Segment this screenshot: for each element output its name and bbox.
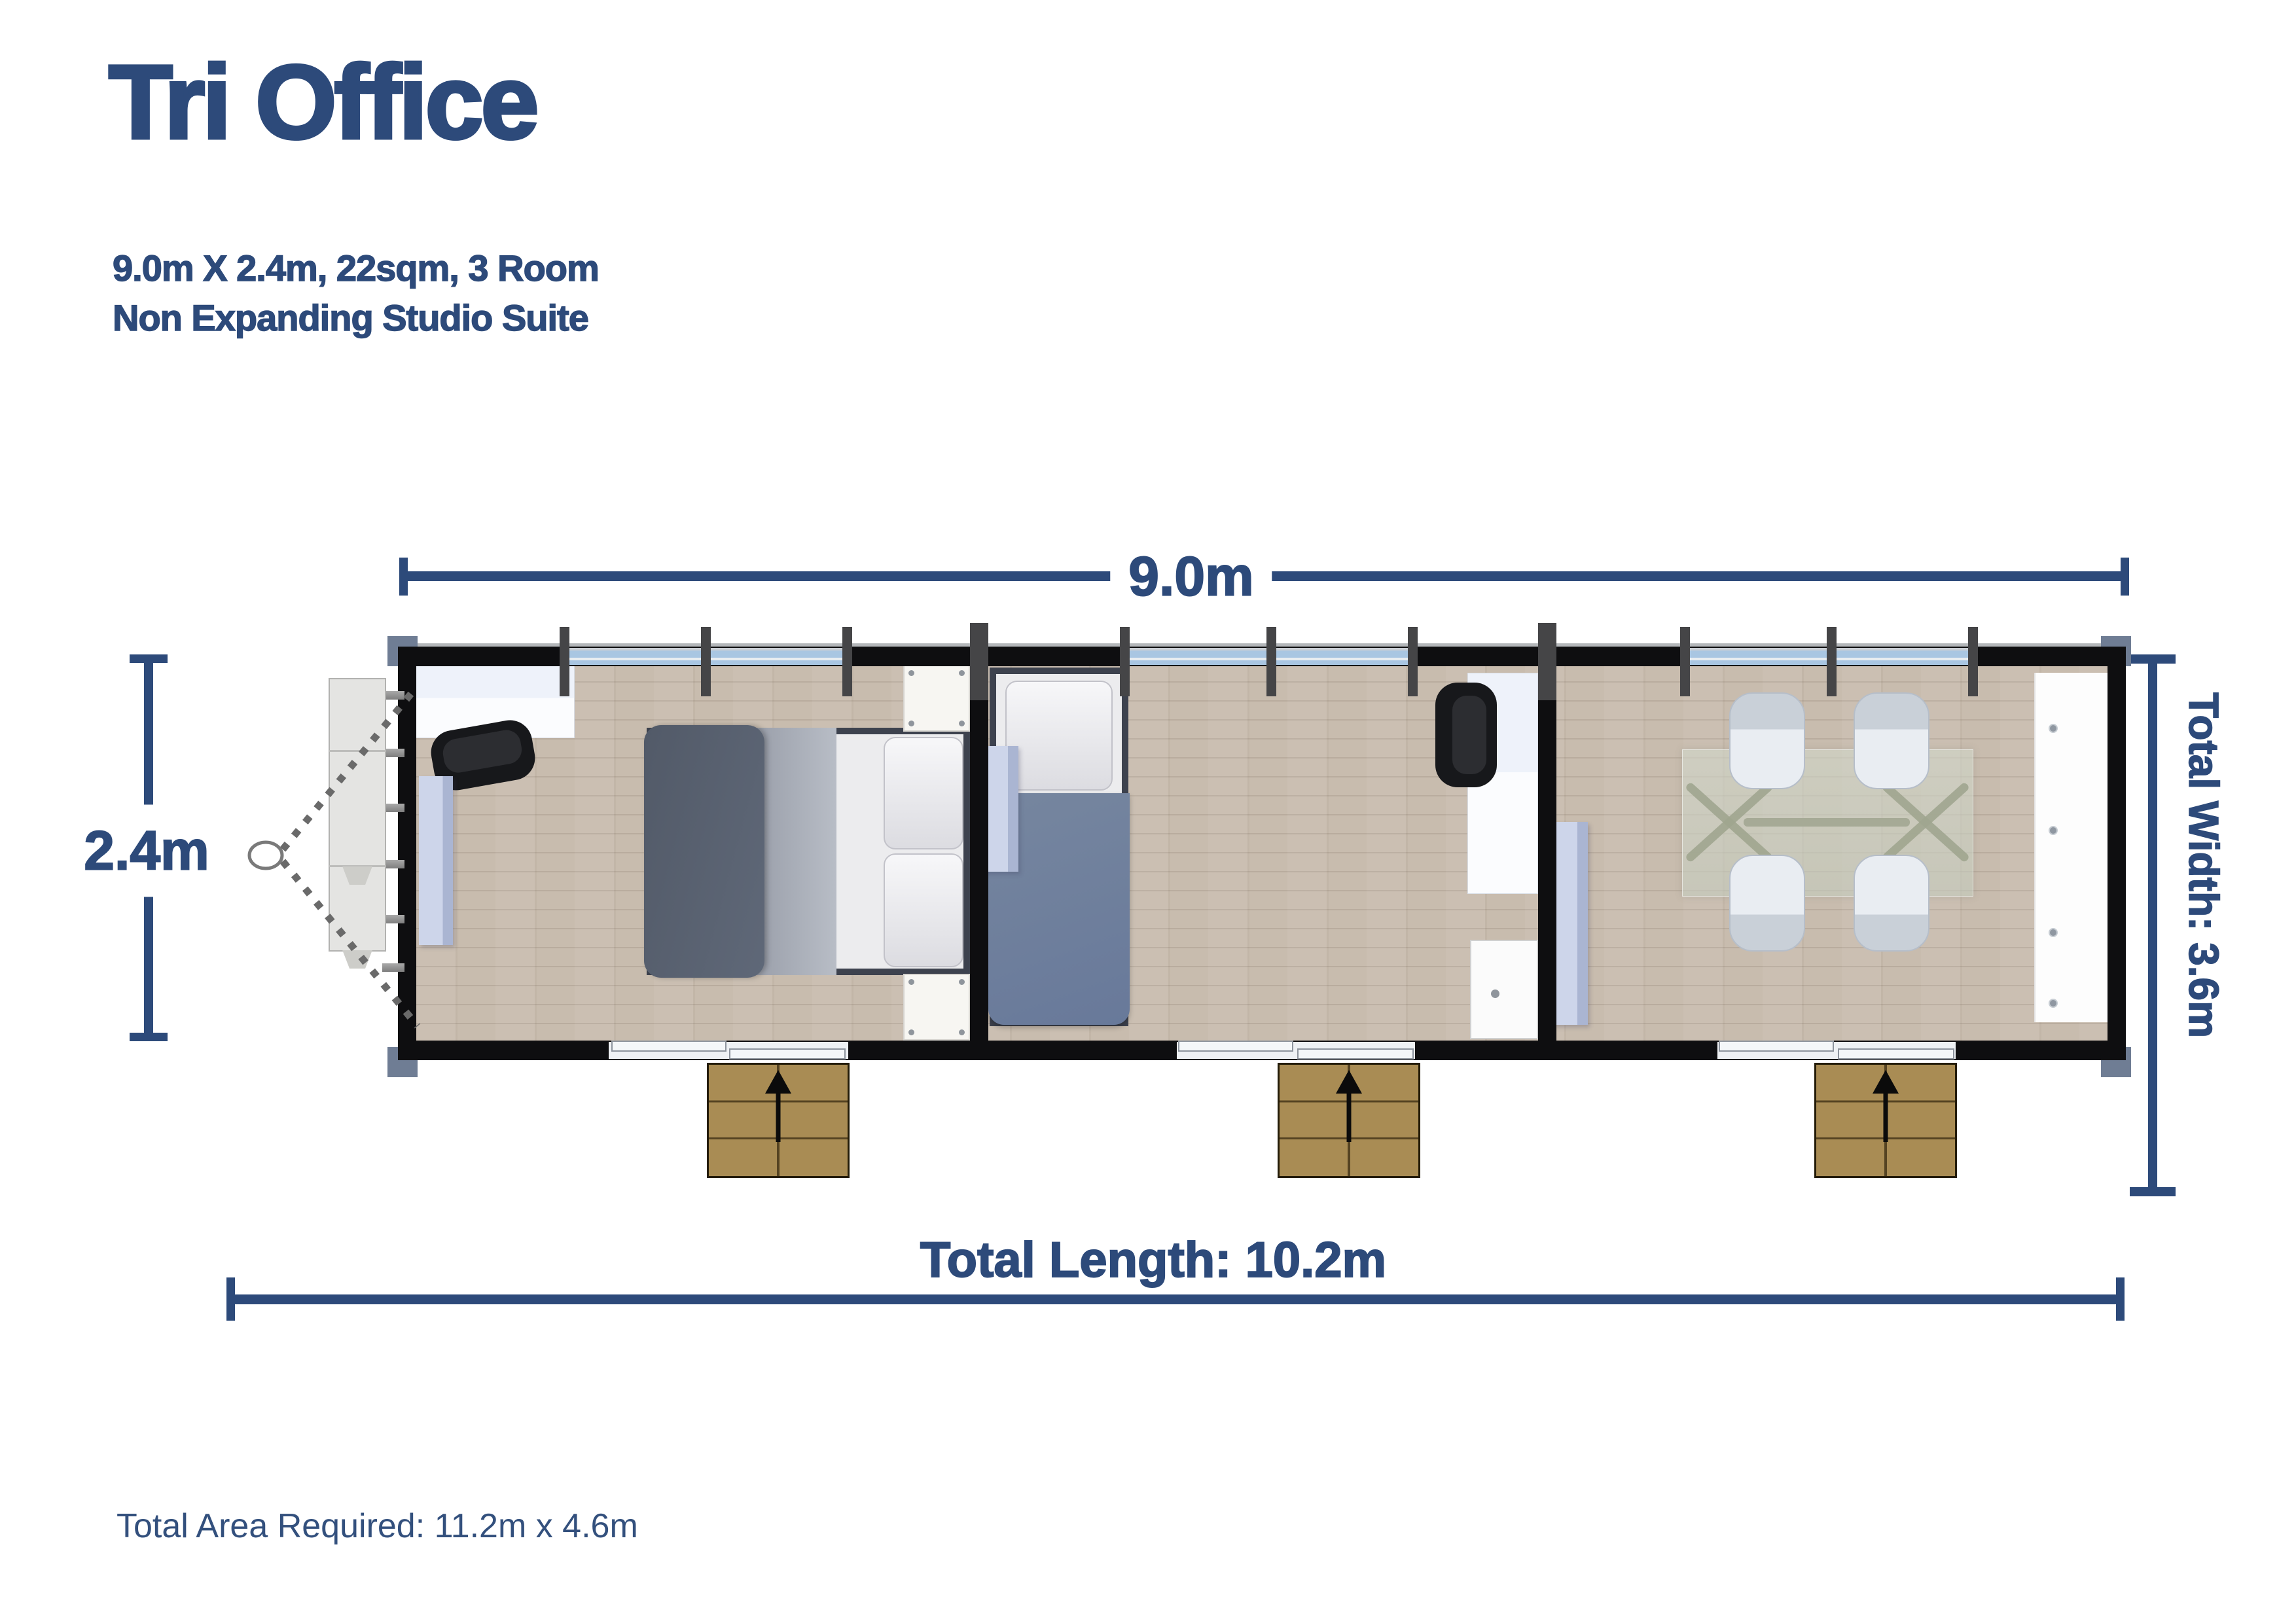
door-panel — [1838, 1048, 1954, 1060]
dimension-left-cap-bottom — [130, 1033, 168, 1041]
chair-top-left — [1729, 692, 1805, 789]
roof-tick-joint — [970, 623, 988, 700]
screw-icon — [908, 1029, 914, 1035]
subtitle-line-1: 9.0m X 2.4m, 22sqm, 3 Room — [113, 243, 599, 293]
roof-tick — [1827, 627, 1837, 696]
dimension-bottom-cap-left — [226, 1277, 235, 1321]
entry-step-room1 — [707, 1063, 850, 1178]
knob-icon — [2049, 999, 2058, 1008]
floor-tray-room2 — [1470, 940, 1538, 1039]
knob-icon — [2049, 826, 2058, 835]
floorplan-sheet: Tri Office 9.0m X 2.4m, 22sqm, 3 Room No… — [0, 0, 2296, 1623]
roof-tick — [560, 627, 569, 696]
screw-icon — [908, 721, 914, 726]
door-swing-line-top — [283, 686, 418, 849]
dimension-right-cap-top — [2130, 654, 2176, 664]
chair-bottom-left — [1729, 855, 1805, 952]
screw-icon — [908, 979, 914, 985]
screw-icon — [959, 979, 965, 985]
dimension-right-label: Total Width: 3.6m — [2179, 692, 2228, 1038]
dimension-right-cap-bottom — [2130, 1187, 2176, 1196]
door-panel — [1178, 1041, 1293, 1052]
roof-tick — [1968, 627, 1978, 696]
double-bed-pillow-1 — [884, 737, 963, 849]
door-swing-line-bottom — [283, 861, 418, 1026]
single-bed-pillow — [1005, 681, 1113, 791]
dimension-bottom-cap-right — [2116, 1277, 2125, 1321]
wall-interior-2 — [1538, 656, 1556, 1048]
entry-arrow-icon — [1336, 1070, 1362, 1094]
entry-arrow-stem — [776, 1091, 781, 1142]
dimension-bottom-label: Total Length: 10.2m — [920, 1232, 1386, 1289]
screw-icon — [908, 670, 914, 676]
entry-step-room2 — [1278, 1063, 1420, 1178]
screw-icon — [959, 670, 965, 676]
roof-tick — [842, 627, 852, 696]
entry-step-room3 — [1814, 1063, 1957, 1178]
office-chair-seat — [1452, 696, 1486, 774]
drain-dot — [1491, 990, 1499, 998]
chair-bottom-right — [1854, 855, 1929, 952]
wall-panel-room2 — [983, 746, 1018, 872]
dimension-left-cap-top — [130, 654, 168, 663]
nightstand-bottom — [903, 974, 970, 1041]
dimension-bottom-line — [230, 1294, 2121, 1304]
nightstand-top — [903, 665, 970, 732]
roof-tick-joint — [1538, 623, 1556, 700]
roof-tick — [1120, 627, 1130, 696]
knob-icon — [2049, 928, 2058, 937]
office-chair-room2 — [1435, 683, 1497, 787]
subtitle-line-2: Non Expanding Studio Suite — [113, 293, 599, 343]
table-leg-bar — [1744, 818, 1910, 827]
entry-arrow-icon — [765, 1070, 791, 1094]
screw-icon — [959, 1029, 965, 1035]
double-bed-duvet — [644, 725, 764, 978]
counter-room3 — [2034, 673, 2108, 1022]
door-panel — [729, 1048, 846, 1060]
chair-top-right — [1854, 692, 1929, 789]
wall-panel-room3 — [1552, 822, 1588, 1025]
roof-tick — [1408, 627, 1418, 696]
roof-tick — [1266, 627, 1276, 696]
dimension-top-cap-right — [2121, 558, 2129, 596]
door-swing-hinge — [249, 842, 282, 868]
entry-arrow-stem — [1347, 1091, 1352, 1142]
dimension-top-label: 9.0m — [1110, 545, 1272, 609]
door-panel — [1719, 1041, 1834, 1052]
page-subtitle: 9.0m X 2.4m, 22sqm, 3 Room Non Expanding… — [113, 243, 599, 343]
screw-icon — [959, 721, 965, 726]
door-panel — [611, 1041, 726, 1052]
roof-tick — [701, 627, 711, 696]
page-title: Tri Office — [109, 47, 537, 157]
roof-tick — [1680, 627, 1690, 696]
wall-interior-1 — [970, 656, 988, 1048]
entry-arrow-stem — [1884, 1091, 1888, 1142]
knob-icon — [2049, 724, 2058, 733]
dimension-top-cap-left — [399, 558, 408, 596]
dimension-right-line — [2148, 664, 2157, 1187]
door-panel — [1297, 1048, 1414, 1060]
dimension-left-label: 2.4m — [77, 805, 215, 897]
total-area-note: Total Area Required: 11.2m x 4.6m — [117, 1507, 638, 1546]
entry-arrow-icon — [1873, 1070, 1899, 1094]
wall-right — [2108, 647, 2126, 1060]
door-swing-icon — [246, 668, 433, 1044]
double-bed-pillow-2 — [884, 853, 963, 967]
